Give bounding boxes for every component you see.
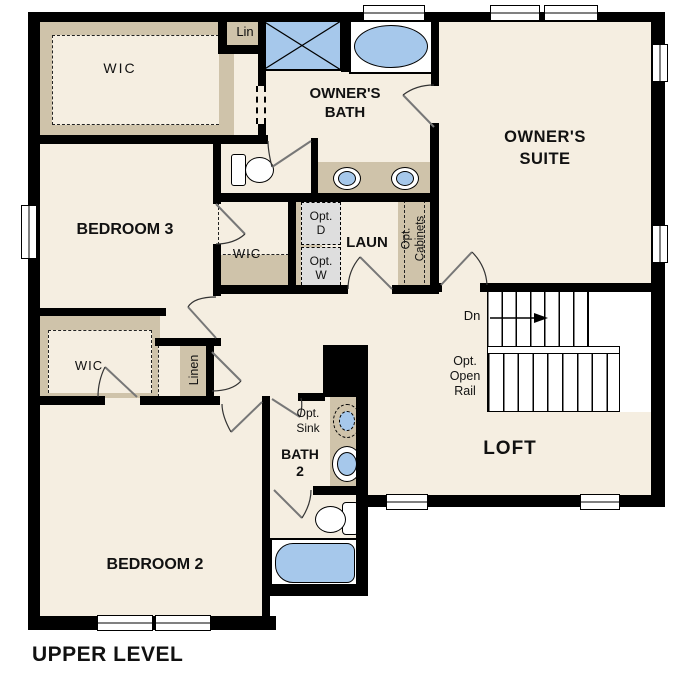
linen-hall-label: Linen	[187, 348, 201, 392]
linen-upper-label: Lin	[224, 24, 266, 39]
wic-owners-shelf-line	[52, 35, 219, 125]
wall	[140, 396, 220, 405]
opt-open-rail-line1: Opt.	[453, 354, 477, 368]
window	[97, 615, 153, 631]
owners-bathtub	[354, 25, 428, 68]
door-bedroom2	[218, 400, 264, 438]
door-bedroom3	[184, 294, 220, 342]
wall	[213, 144, 221, 204]
opt-washer-label2: W	[315, 268, 326, 282]
loft-label: LOFT	[460, 438, 560, 460]
owners-toilet-tank	[231, 154, 246, 186]
bedroom3-label: BEDROOM 3	[45, 221, 205, 239]
bath2-opt-sink-basin	[339, 411, 355, 431]
shower	[262, 20, 342, 71]
window	[363, 5, 425, 21]
wic-bedroom2-label: WIC	[62, 358, 116, 373]
opt-dryer-label: Opt.	[310, 209, 333, 223]
window	[386, 494, 428, 510]
wall	[218, 193, 438, 202]
cased-opening	[256, 86, 266, 124]
window	[652, 225, 668, 263]
opt-washer-box: Opt. W	[301, 247, 341, 290]
wall	[262, 584, 366, 596]
door-linen-hall	[210, 350, 246, 394]
door-owners-toilet	[266, 139, 314, 173]
owners-bath-line2: BATH	[325, 104, 366, 121]
opt-open-rail-line3: Rail	[454, 384, 476, 398]
door-wic-bedroom3	[214, 202, 250, 246]
wall	[313, 486, 358, 495]
stairs-railing	[487, 346, 620, 354]
door-laundry	[344, 253, 396, 293]
owners-bath-line1: OWNER'S	[309, 85, 380, 102]
bath2-line1: BATH	[281, 446, 319, 462]
opt-cabinets-line2: Cabinets	[414, 216, 426, 261]
wic-bedroom3-label: WIC	[224, 246, 270, 261]
owners-bath-label: OWNER'S BATH	[283, 84, 407, 122]
bedroom2-label: BEDROOM 2	[75, 556, 235, 574]
owners-suite-line2: SUITE	[519, 150, 570, 168]
wall	[28, 12, 40, 630]
opt-cabinets-line1: Opt.	[401, 228, 413, 250]
wall	[430, 123, 439, 197]
opt-cabinets-label: Opt. Cabinets	[401, 209, 428, 269]
window	[490, 5, 540, 21]
owners-sink-left-basin	[338, 171, 356, 186]
opt-open-rail-label: Opt. Open Rail	[436, 354, 494, 399]
stairs-down-arrow	[490, 311, 550, 325]
owners-sink-right-basin	[396, 171, 414, 186]
door-owners-suite	[437, 246, 491, 289]
plan-title: UPPER LEVEL	[32, 643, 262, 667]
window	[155, 615, 211, 631]
bath2-bathtub	[275, 543, 355, 583]
wall	[258, 124, 266, 144]
bath2-sink-basin	[337, 452, 357, 476]
bath2-line2: 2	[296, 463, 304, 479]
floor-plan: Opt. D Opt. W	[0, 0, 687, 687]
wall	[431, 18, 439, 86]
opt-sink-line1: Opt.	[297, 406, 320, 420]
opt-open-rail-line2: Open	[450, 369, 481, 383]
opt-sink-line2: Sink	[296, 421, 319, 435]
wic-bedroom2-side-shelf	[158, 345, 182, 397]
wall	[392, 285, 439, 294]
bath2-toilet-bowl	[315, 506, 346, 533]
opt-washer-label: Opt.	[310, 254, 333, 268]
stairs-lower-run	[487, 354, 620, 412]
door-bath2-wet-area	[270, 486, 316, 524]
bath2-label: BATH 2	[274, 446, 326, 480]
owners-suite-line1: OWNER'S	[504, 128, 586, 146]
laundry-label: LAUN	[334, 234, 400, 251]
window	[580, 494, 620, 510]
wall	[480, 283, 665, 292]
stairs-down-label: Dn	[458, 308, 486, 323]
wall	[28, 135, 268, 144]
wall	[213, 285, 348, 294]
owners-suite-label: OWNER'S SUITE	[478, 126, 612, 170]
wall	[28, 308, 166, 316]
wic-owners-label: WIC	[88, 60, 152, 76]
wall	[288, 200, 296, 287]
chase	[323, 345, 361, 397]
window	[21, 205, 37, 259]
window	[544, 5, 598, 21]
window	[652, 44, 668, 82]
opt-sink-label: Opt. Sink	[285, 406, 331, 435]
floor-plan-canvas: Opt. D Opt. W	[0, 0, 687, 687]
opt-dryer-label2: D	[317, 223, 326, 237]
wall	[341, 18, 350, 72]
